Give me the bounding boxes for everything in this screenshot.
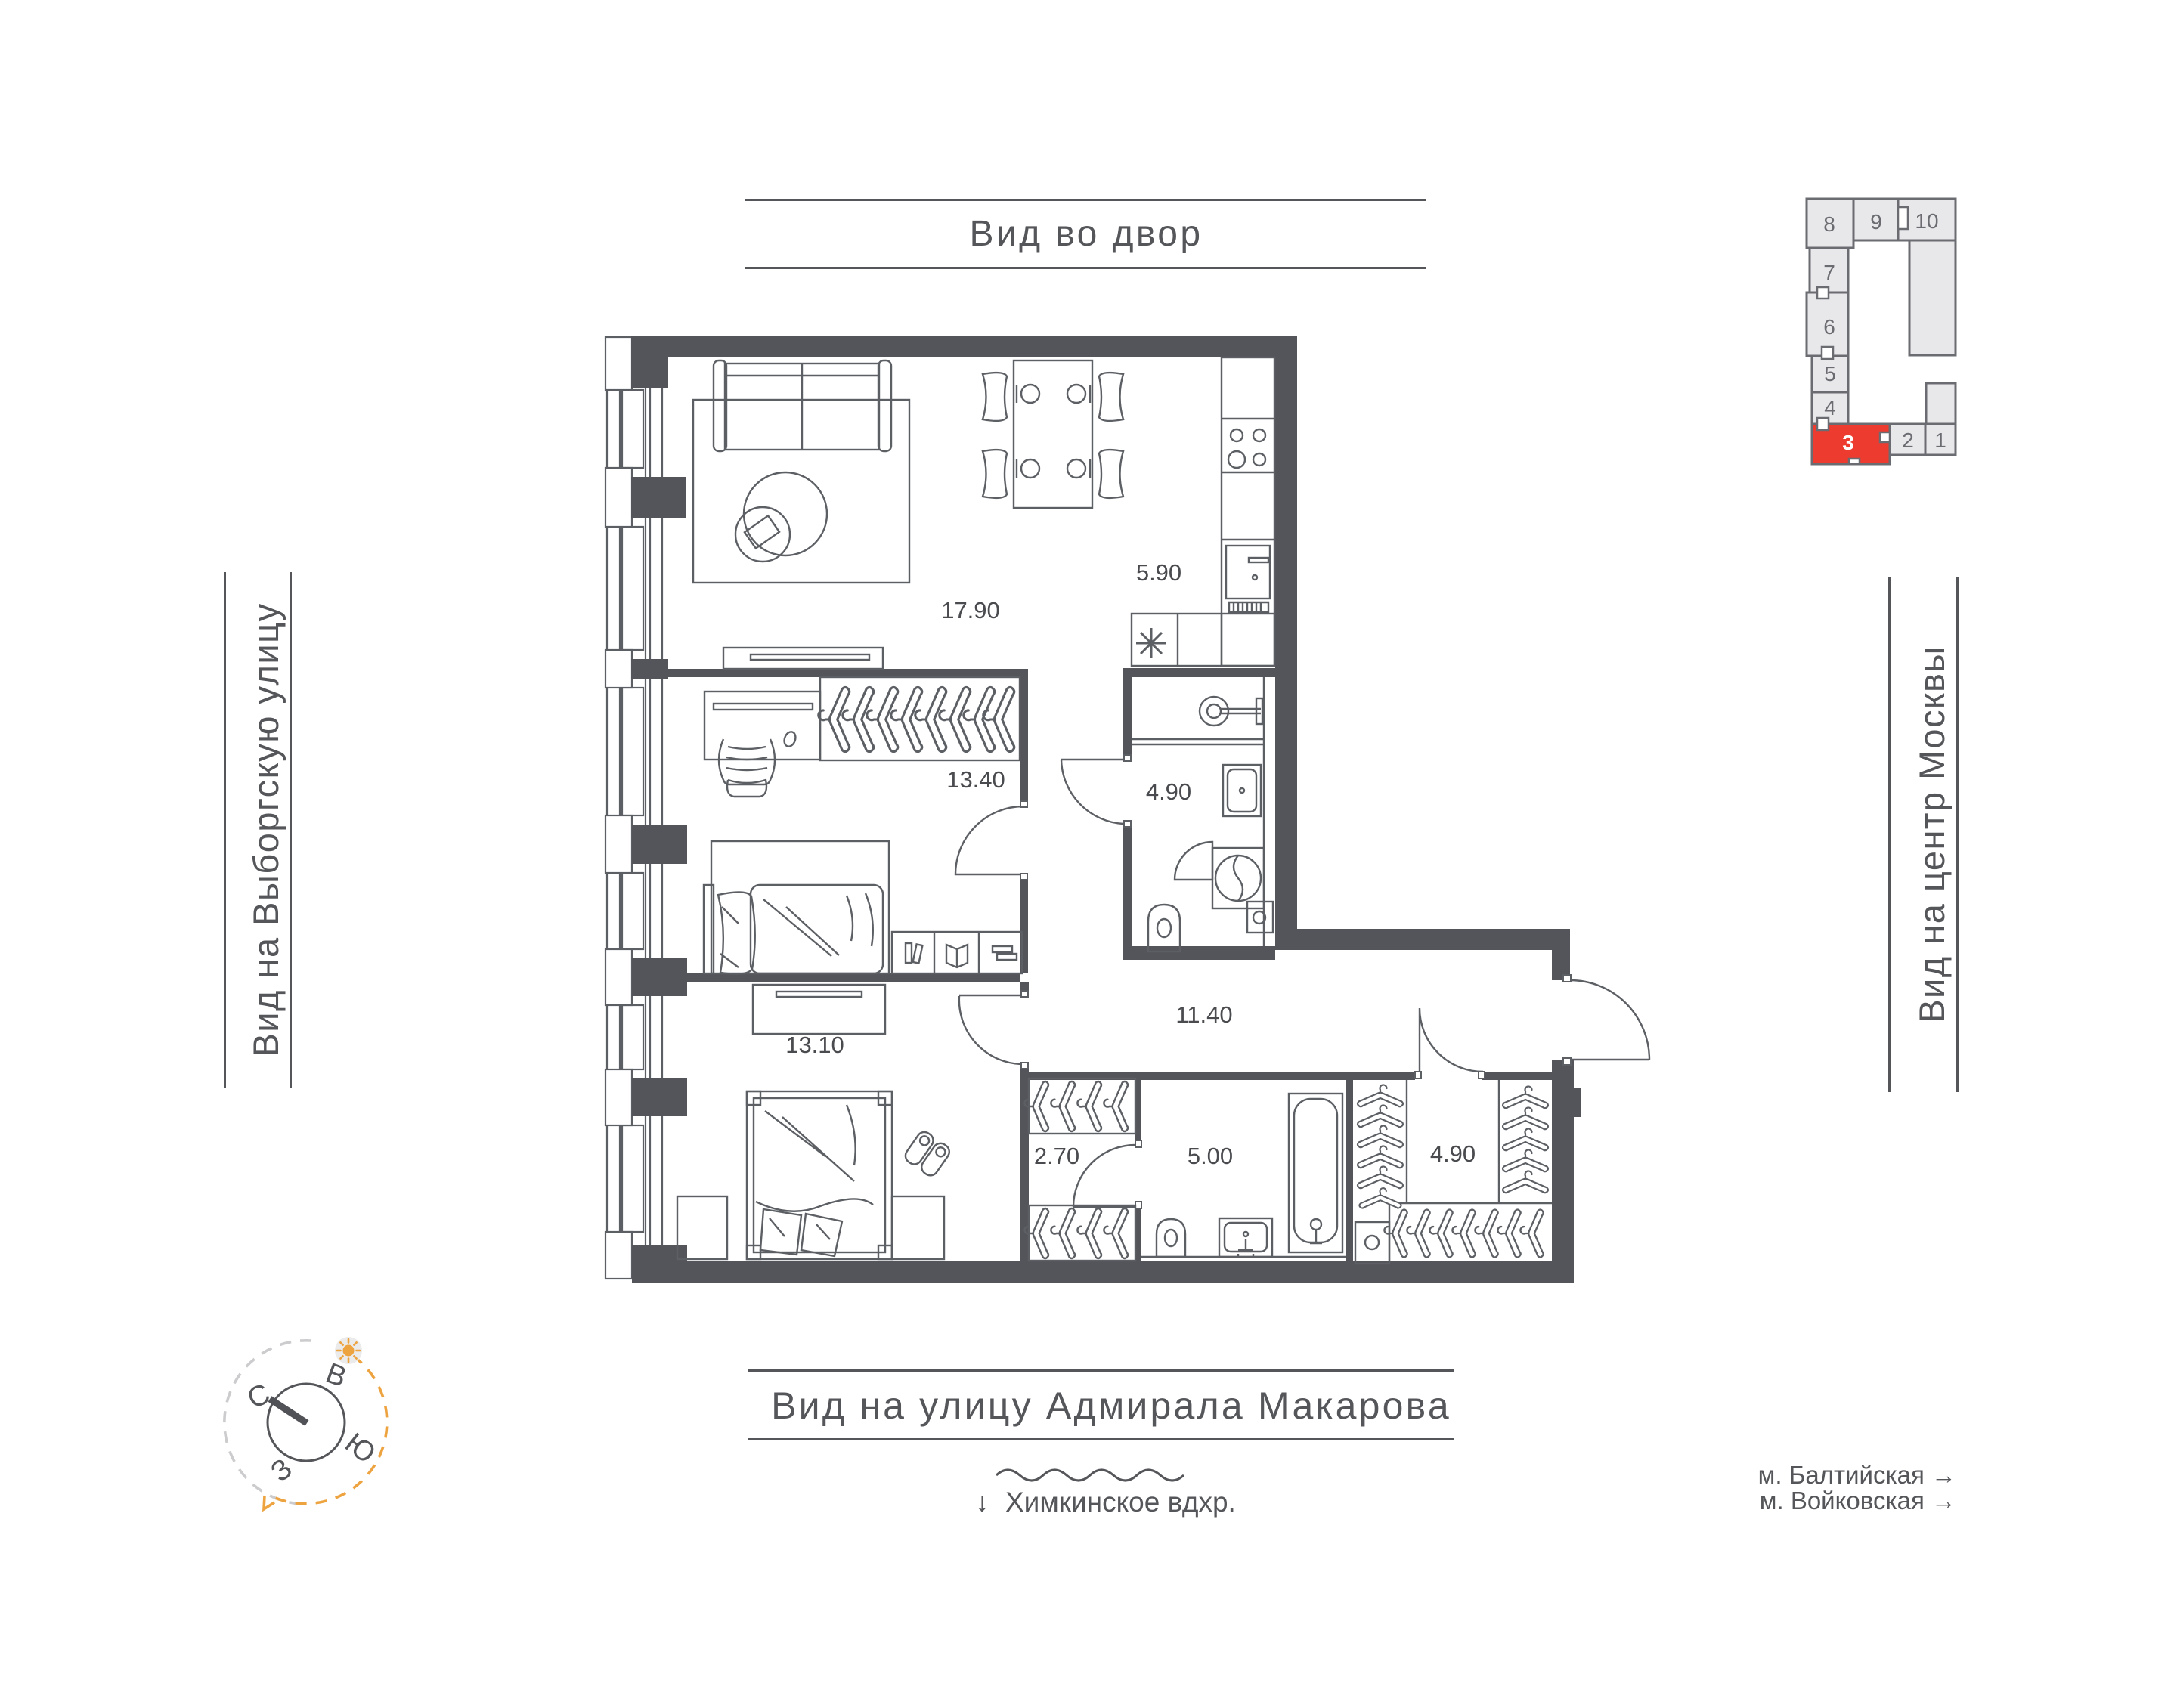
svg-text:8: 8 xyxy=(1823,212,1835,236)
svg-text:13.40: 13.40 xyxy=(946,766,1005,793)
svg-text:м. Балтийская →: м. Балтийская → xyxy=(1758,1461,1956,1489)
svg-text:Вид на Выборгскую улицу: Вид на Выборгскую улицу xyxy=(246,602,286,1057)
svg-text:5.90: 5.90 xyxy=(1136,559,1181,586)
svg-text:Химкинское вдхр.: Химкинское вдхр. xyxy=(1005,1487,1236,1518)
svg-text:5.00: 5.00 xyxy=(1188,1143,1233,1169)
svg-text:10: 10 xyxy=(1915,209,1938,233)
svg-text:Вид на центр Москвы: Вид на центр Москвы xyxy=(1912,645,1952,1023)
svg-text:5: 5 xyxy=(1824,362,1836,385)
svg-text:4: 4 xyxy=(1824,396,1836,419)
svg-text:13.10: 13.10 xyxy=(785,1032,844,1058)
svg-text:Ю: Ю xyxy=(339,1427,381,1470)
svg-text:9: 9 xyxy=(1870,210,1882,234)
svg-text:м. Войковская →: м. Войковская → xyxy=(1760,1487,1956,1515)
svg-text:6: 6 xyxy=(1823,315,1835,339)
svg-text:Вид на улицу Адмирала Макарова: Вид на улицу Адмирала Макарова xyxy=(771,1385,1451,1427)
svg-text:3: 3 xyxy=(1842,431,1854,454)
svg-text:↓: ↓ xyxy=(975,1487,989,1518)
svg-text:7: 7 xyxy=(1823,261,1835,284)
svg-text:17.90: 17.90 xyxy=(941,597,1000,623)
svg-text:В: В xyxy=(322,1357,351,1394)
svg-text:2.70: 2.70 xyxy=(1034,1143,1079,1169)
svg-text:1: 1 xyxy=(1934,429,1946,452)
svg-text:4.90: 4.90 xyxy=(1146,778,1191,805)
svg-text:Вид во двор: Вид во двор xyxy=(970,214,1203,254)
svg-text:2: 2 xyxy=(1902,429,1914,452)
svg-text:11.40: 11.40 xyxy=(1175,1001,1232,1028)
svg-text:4.90: 4.90 xyxy=(1430,1140,1476,1167)
